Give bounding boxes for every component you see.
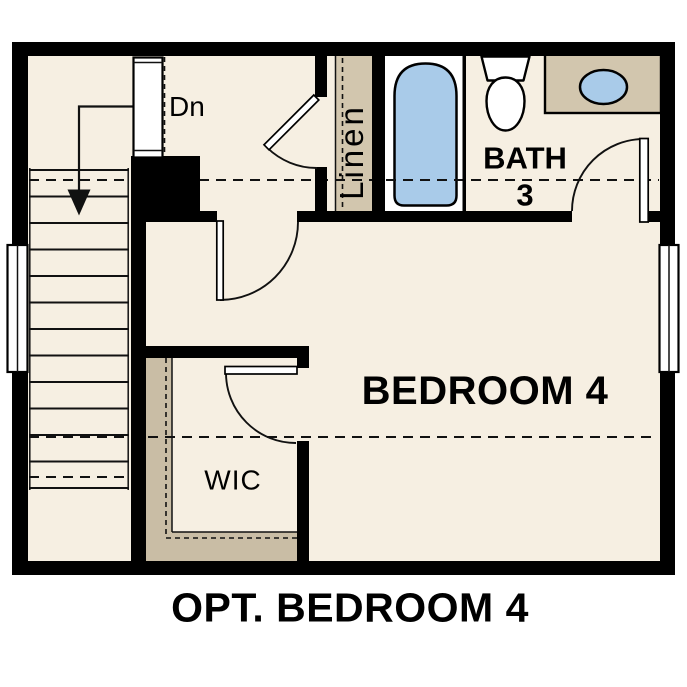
bathtub [395,64,457,206]
bath-room-label: BATH 3 [483,140,567,213]
wall-block-chimney [131,156,200,212]
wic-shelf-bottom [146,532,297,561]
bedroom-label: BEDROOM 4 [362,369,609,413]
sink [580,70,627,104]
bath-label-line2: 3 [483,177,567,214]
toilet-bowl [487,78,525,131]
wic-label: WIC [204,466,261,497]
wall-wic-top [146,346,307,358]
wall-hall-left [131,211,217,222]
plan-title: OPT. BEDROOM 4 [171,585,529,630]
wall-stair-divider [131,212,146,561]
wall-tub-partition [463,56,467,211]
wic-shelf-left [146,358,172,561]
stair-railing [134,58,163,158]
wall-bath-bottom-right-stub [648,211,660,222]
wall-top [12,42,675,56]
linen-closet-label: Linen [334,104,370,200]
door-leaf-bedroom [217,221,223,300]
bath-label-line1: BATH [483,140,567,177]
floor-plan-opt-bedroom-4: Dn Linen BATH 3 BEDROOM 4 WIC OPT. BEDRO… [0,0,687,687]
wall-linen-right [372,56,385,211]
wall-bottom [12,561,675,575]
wall-linen-door-stub-lower [315,167,327,211]
door-leaf-bath [640,139,648,223]
window-right [660,245,679,372]
wall-linen-door-stub-upper [315,56,327,97]
wall-wic-right [297,441,309,561]
window-left [8,245,28,372]
stair-down-label: Dn [169,92,205,123]
door-leaf-wic [225,367,297,375]
wall-wic-hinge-stub [297,346,309,368]
